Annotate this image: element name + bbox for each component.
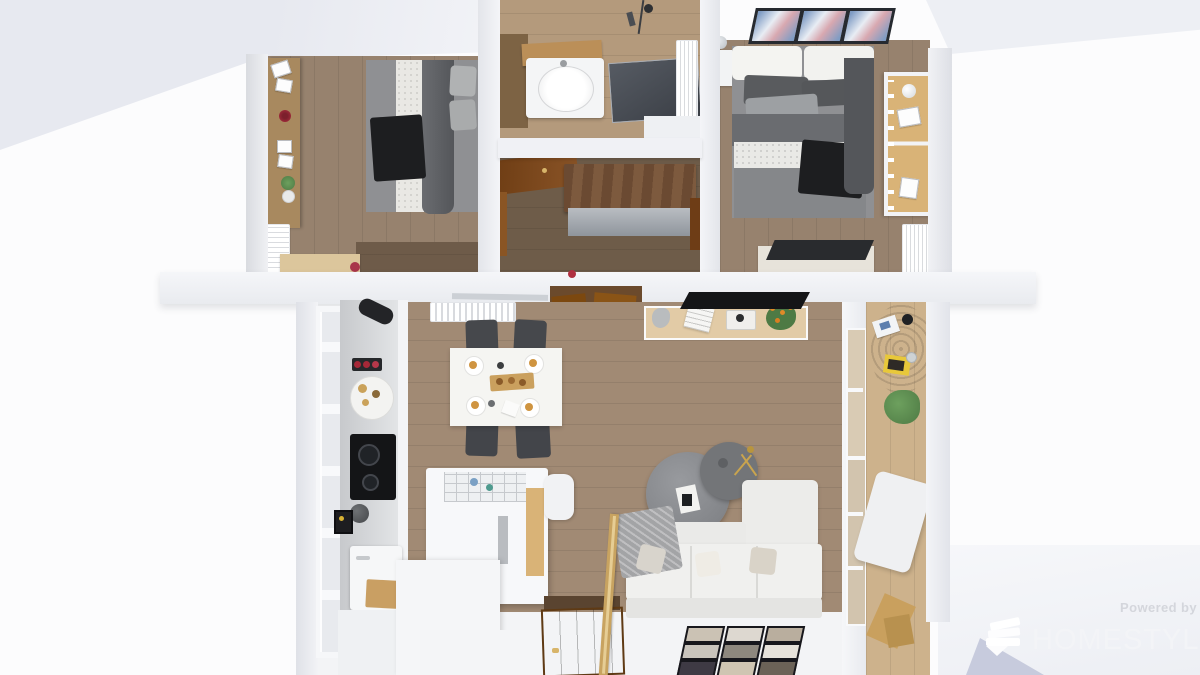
floorplan-render: Powered by HOMESTYLER (0, 0, 1200, 675)
watermark-brand: HOMESTYLER (1032, 624, 1200, 657)
watermark: Powered by HOMESTYLER (0, 0, 1200, 675)
homestyler-logo-icon (986, 618, 1026, 656)
logo-fan-slat (986, 638, 1020, 646)
logo-fan-base (986, 646, 1008, 656)
watermark-powered-by: Powered by (1105, 600, 1197, 615)
